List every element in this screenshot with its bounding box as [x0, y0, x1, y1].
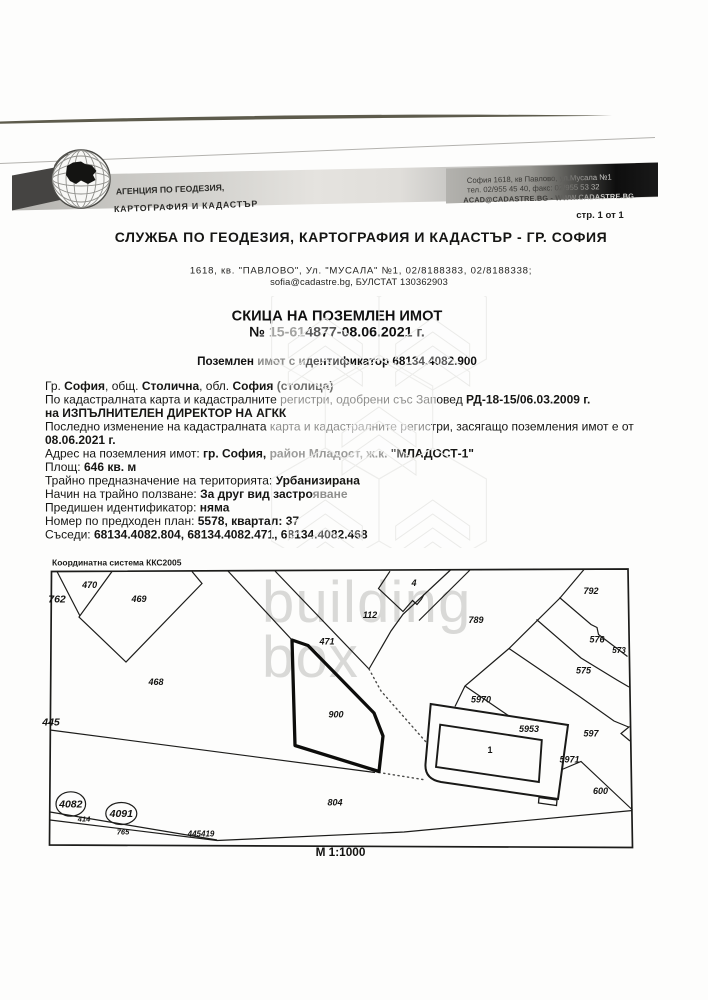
svg-text:1: 1 [487, 745, 492, 755]
svg-text:468: 468 [147, 677, 163, 687]
svg-text:597: 597 [583, 729, 599, 739]
svg-text:Номер по предходен план: 5578,: Номер по предходен план: 5578, квартал: … [45, 514, 299, 528]
svg-text:5970: 5970 [471, 695, 491, 705]
svg-text:792: 792 [583, 586, 598, 596]
svg-text:804: 804 [327, 798, 342, 808]
svg-text:4: 4 [410, 578, 416, 588]
svg-text:стр. 1 от 1: стр. 1 от 1 [576, 210, 624, 221]
svg-text:Предишен идентификатор: няма: Предишен идентификатор: няма [45, 501, 230, 515]
svg-text:469: 469 [130, 594, 146, 604]
svg-text:Начин на трайно ползване: За д: Начин на трайно ползване: За друг вид за… [45, 487, 348, 501]
svg-text:М 1:1000: М 1:1000 [316, 845, 366, 859]
svg-text:08.06.2021 г.: 08.06.2021 г. [45, 433, 116, 447]
svg-text:573: 573 [612, 646, 626, 655]
svg-text:5971: 5971 [559, 755, 579, 765]
svg-text:900: 900 [328, 710, 343, 720]
svg-text:445419: 445419 [187, 830, 215, 839]
svg-text:445: 445 [41, 717, 60, 729]
svg-text:414: 414 [77, 815, 91, 824]
svg-text:600: 600 [593, 786, 608, 796]
svg-text:Координатна система ККС2005: Координатна система ККС2005 [52, 558, 182, 568]
svg-text:box: box [262, 625, 359, 690]
svg-text:470: 470 [81, 580, 97, 590]
svg-text:sofia@cadastre.bg, БУЛСТАТ 130: sofia@cadastre.bg, БУЛСТАТ 130362903 [270, 277, 448, 287]
svg-text:789: 789 [468, 615, 483, 625]
svg-text:762: 762 [48, 594, 66, 606]
svg-text:471: 471 [318, 637, 334, 647]
svg-text:Последно изменение на кадастра: Последно изменение на кадастралната карт… [45, 420, 634, 434]
svg-text:4082: 4082 [58, 799, 83, 811]
svg-text:Трайно предназначение на терит: Трайно предназначение на територията: Ур… [45, 474, 360, 488]
svg-text:5953: 5953 [519, 724, 539, 734]
svg-text:4091: 4091 [109, 808, 134, 820]
svg-text:По кадастралната карта и кадас: По кадастралната карта и кадастралните р… [45, 393, 590, 407]
svg-text:575: 575 [576, 666, 592, 676]
svg-text:на ИЗПЪЛНИТЕЛЕН ДИРЕКТОР НА АГ: на ИЗПЪЛНИТЕЛЕН ДИРЕКТОР НА АГКК [45, 406, 287, 420]
svg-text:576: 576 [589, 635, 605, 645]
svg-text:СКИЦА НА ПОЗЕМЛЕН ИМОТ: СКИЦА НА ПОЗЕМЛЕН ИМОТ [232, 309, 443, 325]
svg-text:112: 112 [363, 610, 377, 620]
svg-text:СЛУЖБА ПО ГЕОДЕЗИЯ, КАРТОГРАФИ: СЛУЖБА ПО ГЕОДЕЗИЯ, КАРТОГРАФИЯ И КАДАСТ… [115, 229, 607, 245]
svg-text:1618, кв. "ПАВЛОВО", Ул. "МУСА: 1618, кв. "ПАВЛОВО", Ул. "МУСАЛА" №1, 02… [190, 266, 532, 277]
svg-text:765: 765 [117, 828, 130, 837]
svg-text:Площ: 646 кв. м: Площ: 646 кв. м [45, 460, 136, 474]
